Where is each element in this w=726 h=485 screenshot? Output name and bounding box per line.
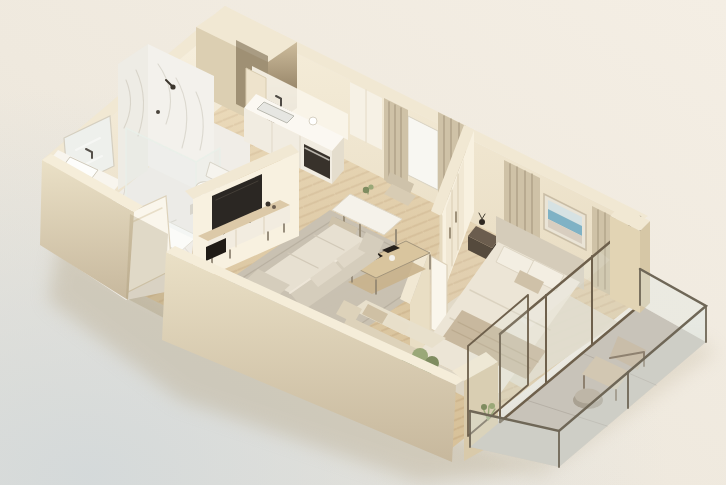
floor-plan-canvas bbox=[0, 0, 726, 485]
kettle bbox=[309, 117, 317, 125]
console-decor bbox=[266, 202, 271, 207]
vase-icon bbox=[479, 219, 485, 225]
floor-plan-render bbox=[0, 0, 726, 485]
